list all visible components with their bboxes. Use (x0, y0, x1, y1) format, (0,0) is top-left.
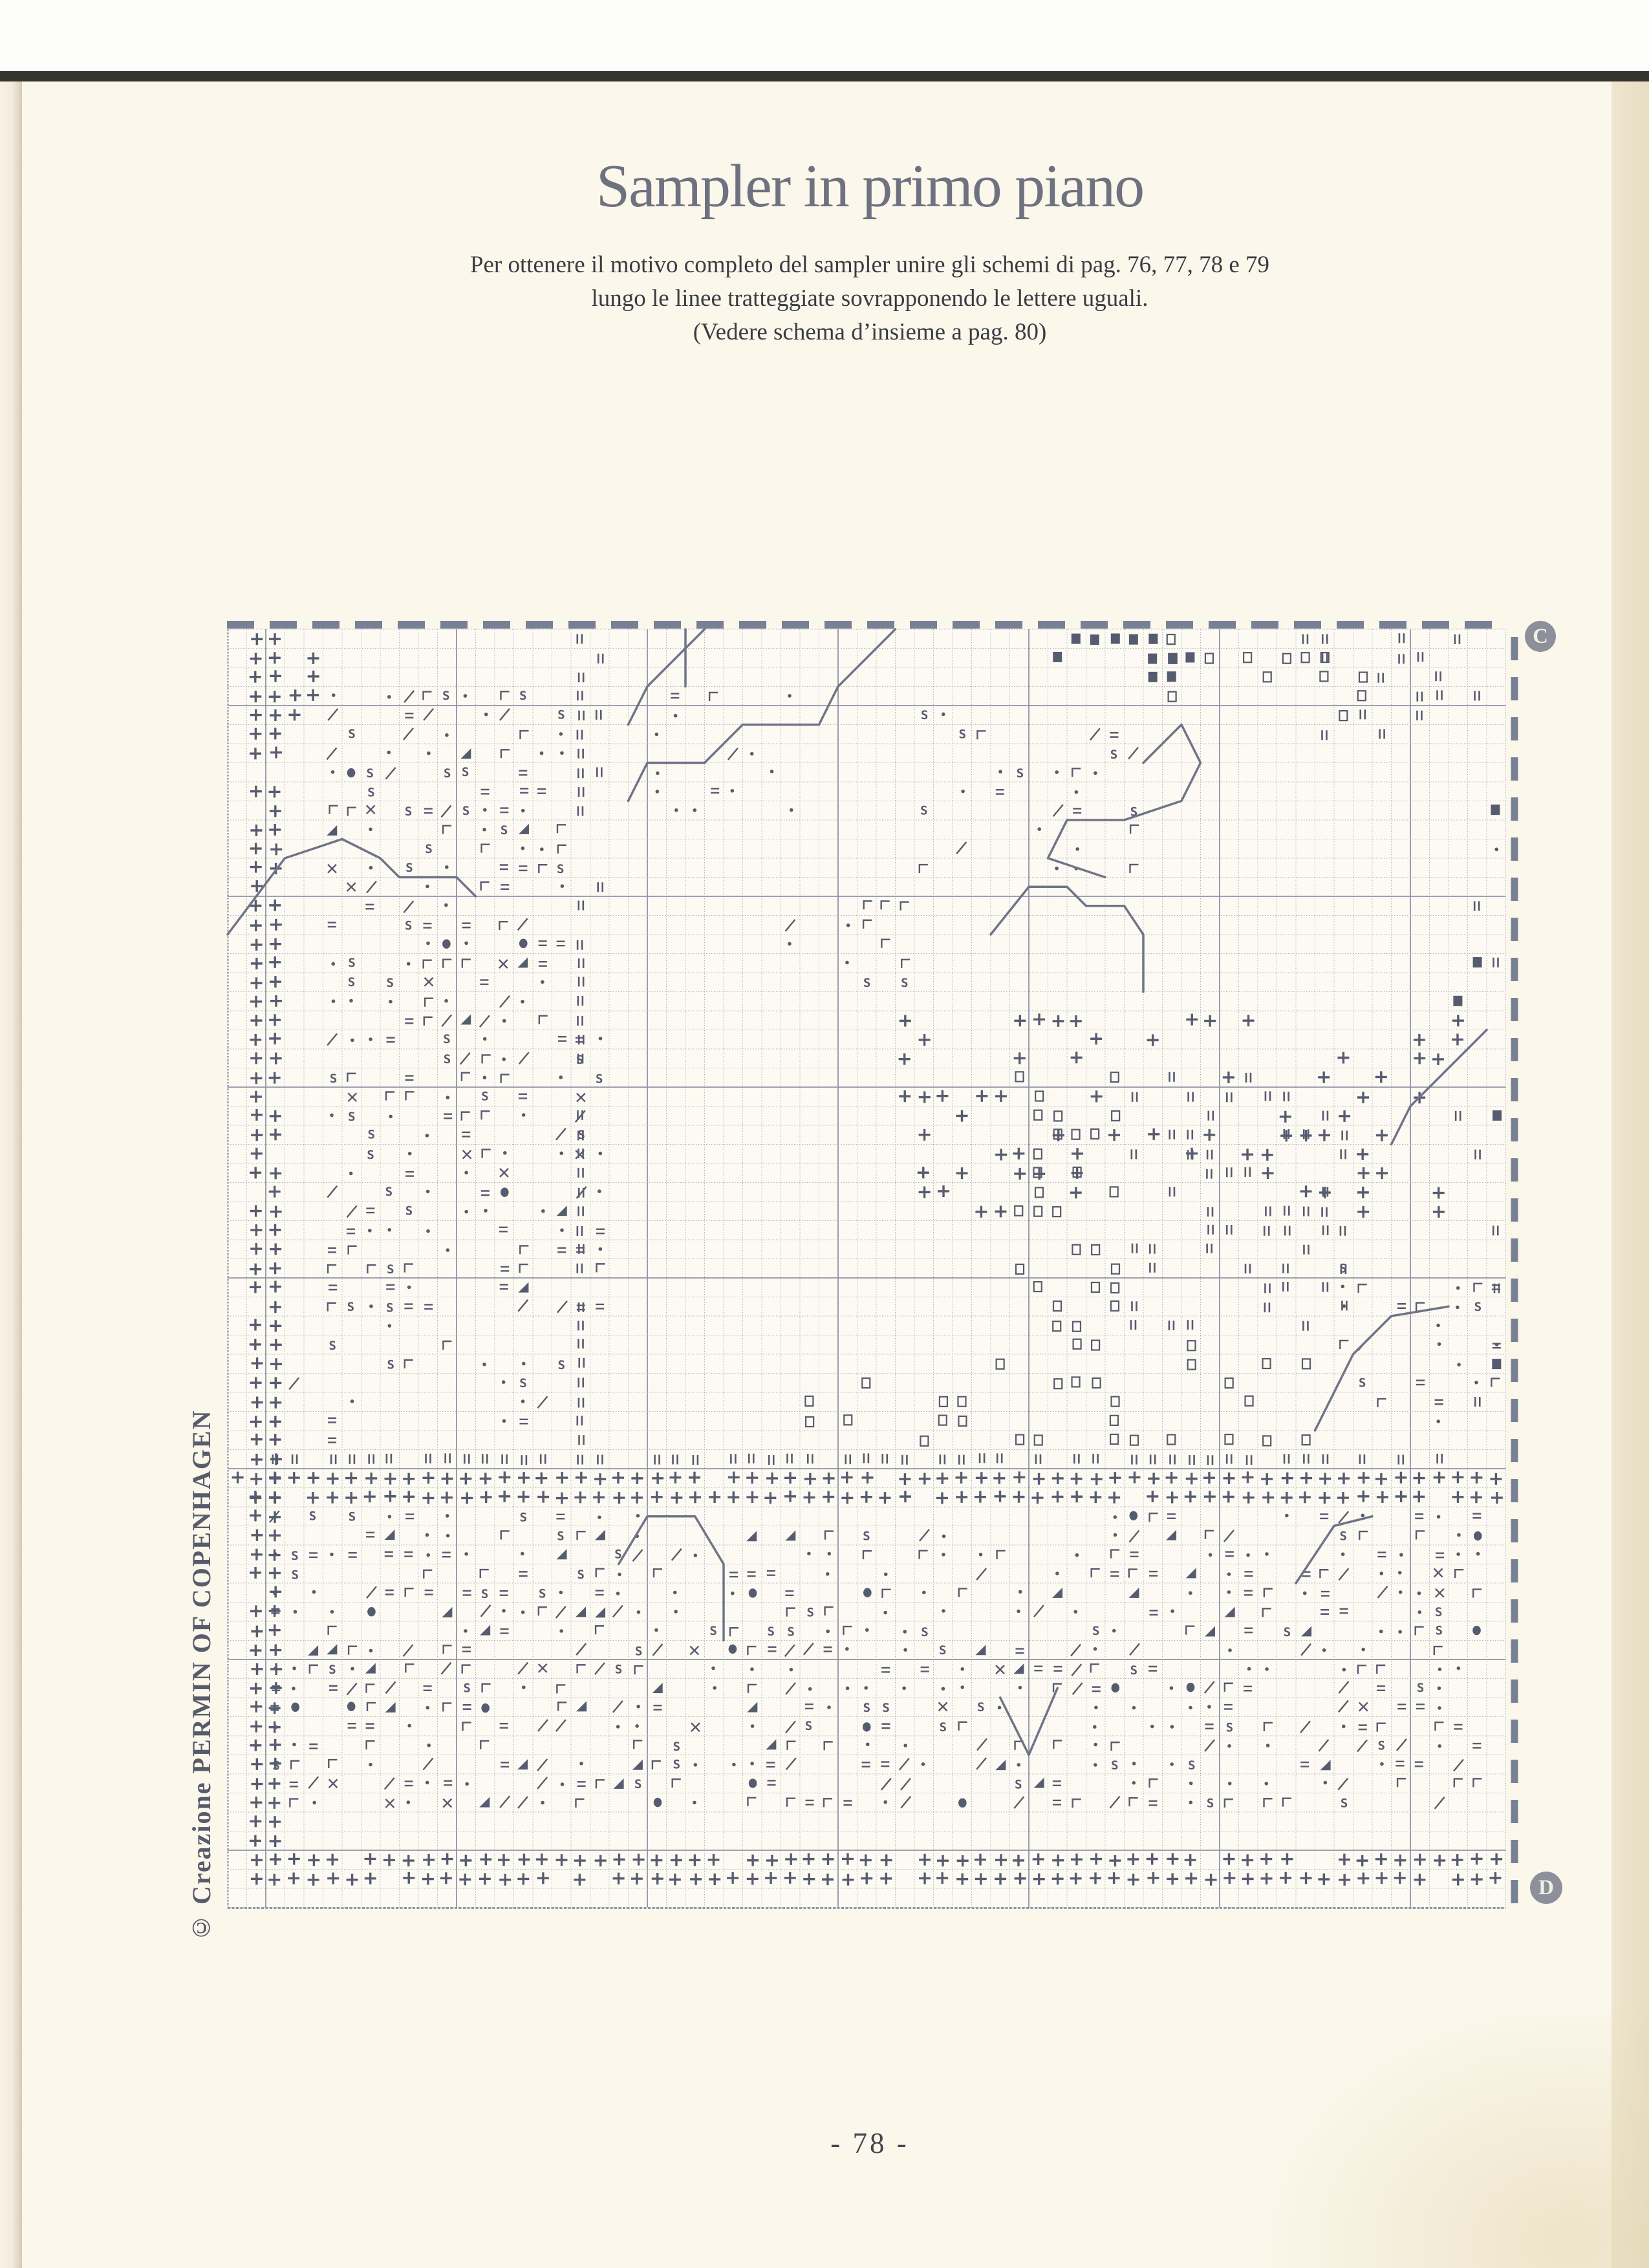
svg-text:S: S (272, 1758, 279, 1773)
svg-text:S: S (1359, 1376, 1366, 1390)
svg-text:S: S (709, 1624, 717, 1638)
svg-text:S: S (385, 1185, 393, 1199)
svg-text:S: S (443, 1032, 450, 1046)
page-title: Sampler in primo piano (45, 151, 1649, 221)
svg-text:S: S (462, 804, 469, 818)
svg-text:S: S (805, 1719, 812, 1733)
svg-text:S: S (959, 728, 966, 742)
svg-text:S: S (444, 766, 451, 781)
svg-text:S: S (463, 1681, 470, 1696)
svg-text:S: S (348, 1110, 355, 1124)
svg-text:S: S (444, 1052, 451, 1066)
scanned-book-page: { "page": { "title": "Sampler in primo p… (0, 0, 1649, 2268)
svg-text:S: S (673, 1757, 680, 1771)
svg-text:S: S (634, 1777, 641, 1791)
section-marker-c: C (1525, 621, 1556, 652)
svg-text:S: S (1015, 1777, 1022, 1791)
instruction-line-2: lungo le linee tratteggiate sovrapponend… (45, 282, 1649, 316)
svg-text:S: S (1017, 766, 1024, 781)
svg-text:S: S (539, 1587, 546, 1601)
copyright-vertical-text: © Creazione PERMIN OF COPENHAGEN (186, 1467, 217, 1943)
svg-text:S: S (863, 976, 870, 990)
svg-text:S: S (387, 1358, 394, 1372)
instruction-line-1: Per ottenere il motivo completo del samp… (45, 248, 1649, 282)
svg-text:S: S (921, 708, 928, 722)
svg-text:S: S (1130, 1663, 1137, 1678)
scanner-margin (0, 0, 1649, 72)
svg-text:S: S (442, 689, 449, 703)
svg-text:S: S (939, 1643, 946, 1658)
svg-text:S: S (615, 1663, 622, 1677)
svg-text:S: S (330, 1072, 337, 1086)
page-left-edge (0, 81, 22, 2268)
svg-text:S: S (921, 1625, 928, 1639)
instruction-line-3: (Vedere schema d’insieme a pag. 80) (45, 316, 1649, 349)
svg-text:S: S (768, 1625, 775, 1639)
svg-text:S: S (1417, 1681, 1424, 1695)
svg-text:S: S (481, 1089, 488, 1103)
svg-text:S: S (557, 1529, 564, 1544)
svg-text:S: S (1435, 1605, 1442, 1619)
svg-text:S: S (348, 975, 355, 989)
svg-text:S: S (367, 1148, 374, 1162)
page-top-edge-shadow (0, 71, 1649, 81)
svg-text:S: S (576, 1053, 583, 1067)
svg-text:S: S (1436, 1623, 1443, 1637)
svg-text:S: S (501, 823, 508, 837)
svg-text:S: S (347, 1300, 354, 1314)
svg-text:S: S (405, 805, 412, 819)
svg-text:S: S (520, 1510, 527, 1524)
svg-text:S: S (309, 1509, 316, 1524)
svg-text:S: S (462, 765, 469, 779)
svg-text:S: S (940, 1720, 947, 1734)
svg-text:S: S (387, 976, 394, 990)
svg-text:S: S (1188, 1758, 1195, 1773)
svg-text:S: S (349, 1509, 356, 1524)
svg-text:S: S (863, 1701, 870, 1715)
svg-text:S: S (1092, 1624, 1099, 1638)
instructions-block: Per ottenere il motivo completo del samp… (45, 248, 1649, 349)
svg-text:S: S (519, 689, 526, 703)
svg-text:S: S (1284, 1625, 1291, 1639)
svg-text:S: S (1110, 748, 1117, 762)
svg-text:S: S (329, 1339, 336, 1353)
section-marker-d: D (1530, 1872, 1562, 1904)
svg-text:S: S (425, 842, 432, 856)
svg-text:S: S (1341, 1797, 1348, 1811)
svg-text:S: S (787, 1625, 794, 1639)
svg-text:S: S (291, 1549, 298, 1563)
chart-svg: SSSSSSSSSSSSSSSSSSSSSSSSSSSSSSSSSSSSSSSS… (223, 620, 1523, 1916)
svg-text:S: S (557, 1358, 565, 1372)
svg-text:S: S (387, 1262, 394, 1277)
svg-text:S: S (348, 956, 355, 970)
svg-text:S: S (807, 1606, 814, 1620)
svg-text:S: S (386, 1301, 393, 1315)
svg-text:S: S (577, 1568, 584, 1582)
svg-text:S: S (329, 1663, 336, 1677)
svg-text:S: S (367, 1128, 374, 1142)
svg-text:S: S (596, 1072, 603, 1086)
svg-text:S: S (1339, 1261, 1346, 1275)
svg-text:S: S (673, 1740, 680, 1754)
svg-text:S: S (635, 1644, 642, 1658)
svg-text:S: S (348, 727, 355, 741)
svg-text:S: S (519, 1376, 526, 1390)
svg-text:S: S (405, 1204, 413, 1218)
page-right-edge (1611, 81, 1649, 2268)
svg-text:S: S (882, 1701, 889, 1715)
page-number: - 78 - (45, 2126, 1649, 2160)
svg-text:S: S (292, 1568, 299, 1582)
svg-text:S: S (901, 976, 908, 990)
svg-text:S: S (367, 786, 374, 800)
svg-text:S: S (1340, 1529, 1347, 1543)
svg-text:S: S (920, 804, 927, 818)
svg-text:S: S (557, 862, 564, 876)
cross-stitch-chart: SSSSSSSSSSSSSSSSSSSSSSSSSSSSSSSSSSSSSSSS… (223, 620, 1523, 1916)
svg-text:S: S (977, 1700, 984, 1714)
svg-text:S: S (557, 708, 565, 722)
svg-text:S: S (481, 1587, 488, 1601)
book-page: Sampler in primo piano Per ottenere il m… (0, 81, 1649, 2268)
svg-text:S: S (367, 766, 374, 781)
svg-text:S: S (577, 1128, 585, 1142)
svg-text:S: S (863, 1529, 870, 1544)
svg-text:S: S (1377, 1739, 1385, 1753)
svg-text:S: S (1226, 1721, 1233, 1735)
svg-text:S: S (1111, 1758, 1118, 1773)
svg-text:S: S (405, 861, 413, 875)
svg-text:S: S (1207, 1797, 1214, 1811)
svg-text:S: S (1474, 1300, 1482, 1314)
svg-text:S: S (405, 918, 412, 933)
